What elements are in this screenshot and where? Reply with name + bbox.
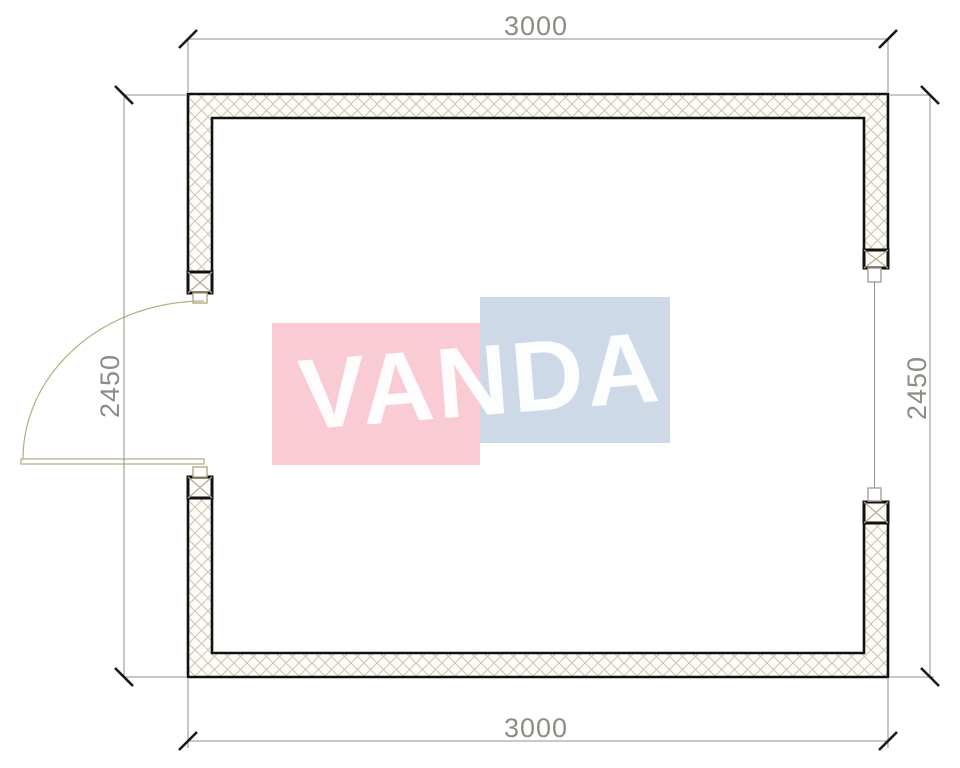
wall-end-cap-door-bottom (188, 477, 212, 498)
wall-end-cap-window-bottom (864, 502, 888, 523)
dimension-right-label: 2450 (902, 356, 932, 420)
dimension-top-lines (188, 39, 888, 92)
dimension-top: 3000 (179, 11, 897, 92)
floor-plan-canvas: VANDA (0, 0, 960, 768)
window (868, 268, 881, 501)
dimension-left-label: 2450 (95, 354, 125, 418)
door-frame-bottom (193, 467, 207, 477)
door-leaf (21, 459, 204, 464)
dimension-top-label: 3000 (504, 11, 568, 41)
dimension-bottom: 3000 (179, 679, 897, 750)
dimension-right: 2450 (890, 86, 939, 686)
window-frame-bottom (868, 488, 881, 501)
window-frame-top (868, 268, 881, 282)
dimension-left: 2450 (95, 86, 186, 686)
dimension-bottom-label: 3000 (504, 713, 568, 743)
dimension-left-lines (124, 95, 186, 677)
wall-end-cap-window-top (864, 250, 888, 268)
wall-upper-section (188, 94, 888, 272)
floor-plan-page: VANDA (0, 0, 960, 768)
watermark: VANDA (272, 297, 670, 465)
wall-end-cap-door-top (188, 272, 212, 293)
wall-lower-section (188, 498, 888, 677)
